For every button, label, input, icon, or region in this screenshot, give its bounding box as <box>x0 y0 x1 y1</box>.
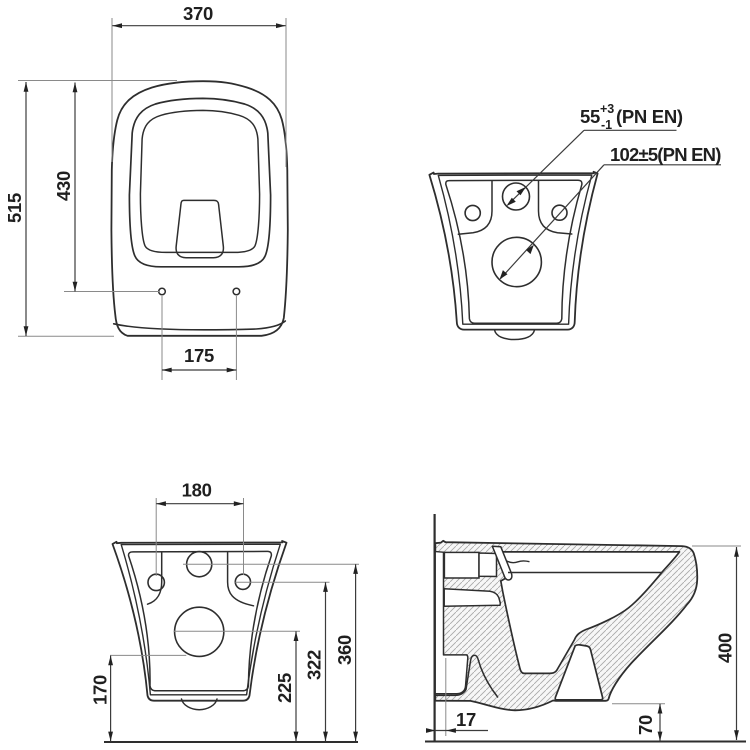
svg-text:17: 17 <box>456 709 476 730</box>
svg-text:430: 430 <box>53 171 74 201</box>
svg-text:225: 225 <box>274 673 295 703</box>
svg-text:370: 370 <box>183 3 213 24</box>
svg-text:102±5(PN EN): 102±5(PN EN) <box>610 144 721 165</box>
svg-text:-1: -1 <box>601 118 612 132</box>
svg-text:322: 322 <box>304 650 325 680</box>
svg-text:+3: +3 <box>600 102 614 116</box>
svg-text:360: 360 <box>334 635 355 665</box>
svg-text:55: 55 <box>580 106 600 127</box>
svg-text:70: 70 <box>635 715 656 735</box>
svg-text:175: 175 <box>184 345 214 366</box>
svg-text:170: 170 <box>90 675 111 705</box>
svg-text:(PN EN): (PN EN) <box>616 106 683 127</box>
svg-text:180: 180 <box>182 480 212 501</box>
svg-text:515: 515 <box>4 193 25 223</box>
svg-text:400: 400 <box>715 633 736 663</box>
